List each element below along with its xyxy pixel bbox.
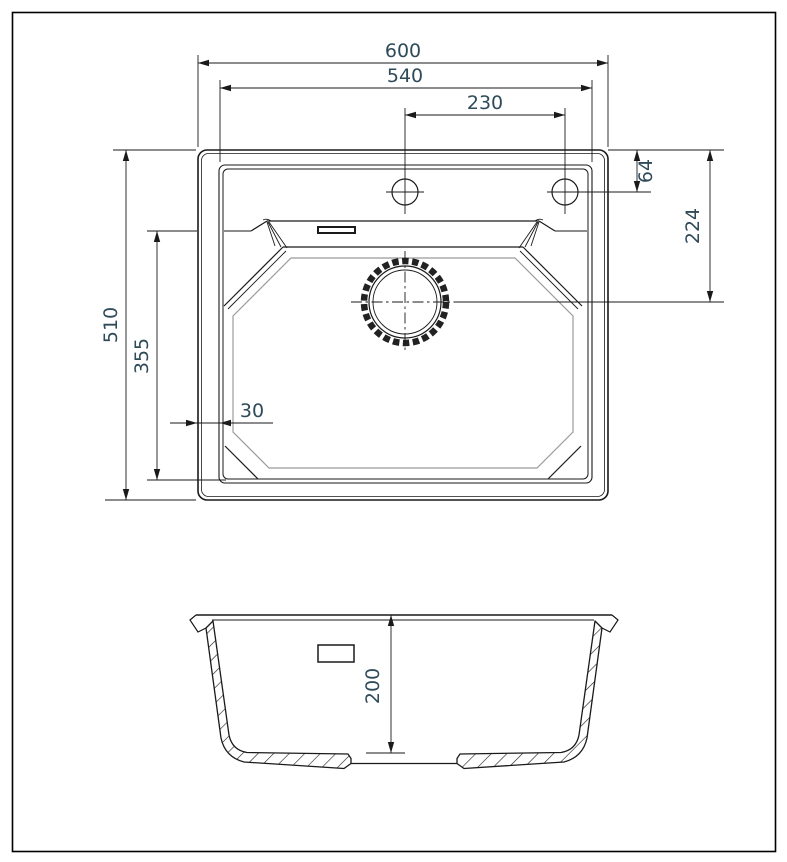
dim-tap-hole-offset-value: 64 bbox=[635, 159, 657, 183]
bowl bbox=[224, 247, 582, 479]
overflow-slot bbox=[318, 227, 355, 233]
dim-bowl-length: 355 bbox=[131, 231, 226, 480]
dimensions-top-view: 600 540 230 64 bbox=[100, 40, 724, 500]
dim-rim-width-value: 540 bbox=[387, 65, 423, 87]
dim-bowl-length-value: 355 bbox=[131, 338, 153, 374]
dim-rim-margin: 30 bbox=[170, 400, 273, 426]
dim-overall-depth-value: 510 bbox=[100, 307, 122, 343]
dim-tap-hole-spacing: 230 bbox=[405, 92, 565, 118]
section-wall-right bbox=[457, 621, 602, 769]
dim-rim-margin-value: 30 bbox=[240, 400, 264, 422]
dim-overall-width-value: 600 bbox=[385, 40, 421, 62]
drawing-page: 600 540 230 64 bbox=[0, 0, 787, 862]
section-lip-right bbox=[602, 615, 618, 632]
section-view: 200 bbox=[190, 615, 618, 769]
section-overflow-opening bbox=[318, 645, 354, 662]
dim-overall-depth: 510 bbox=[100, 150, 196, 500]
sink-outer-edge bbox=[198, 150, 608, 500]
tap-holes bbox=[386, 108, 583, 214]
technical-drawing: 600 540 230 64 bbox=[0, 0, 787, 862]
tap-ledge bbox=[224, 219, 587, 248]
rim-edge-outer bbox=[219, 165, 592, 483]
section-lip-left bbox=[190, 615, 206, 632]
dim-overall-width: 600 bbox=[198, 40, 608, 147]
bowl-floor-outline bbox=[233, 258, 573, 468]
drain bbox=[351, 251, 459, 353]
dim-rim-width: 540 bbox=[220, 65, 592, 162]
dim-bowl-depth: 200 bbox=[362, 615, 405, 753]
top-view bbox=[198, 108, 608, 500]
dim-bowl-depth-value: 200 bbox=[362, 668, 384, 704]
page-border bbox=[13, 13, 776, 852]
dim-tap-hole-spacing-value: 230 bbox=[467, 92, 503, 114]
dim-drain-offset-value: 224 bbox=[682, 208, 704, 244]
rim-edge-inner bbox=[223, 169, 588, 479]
section-wall-left bbox=[206, 621, 351, 769]
